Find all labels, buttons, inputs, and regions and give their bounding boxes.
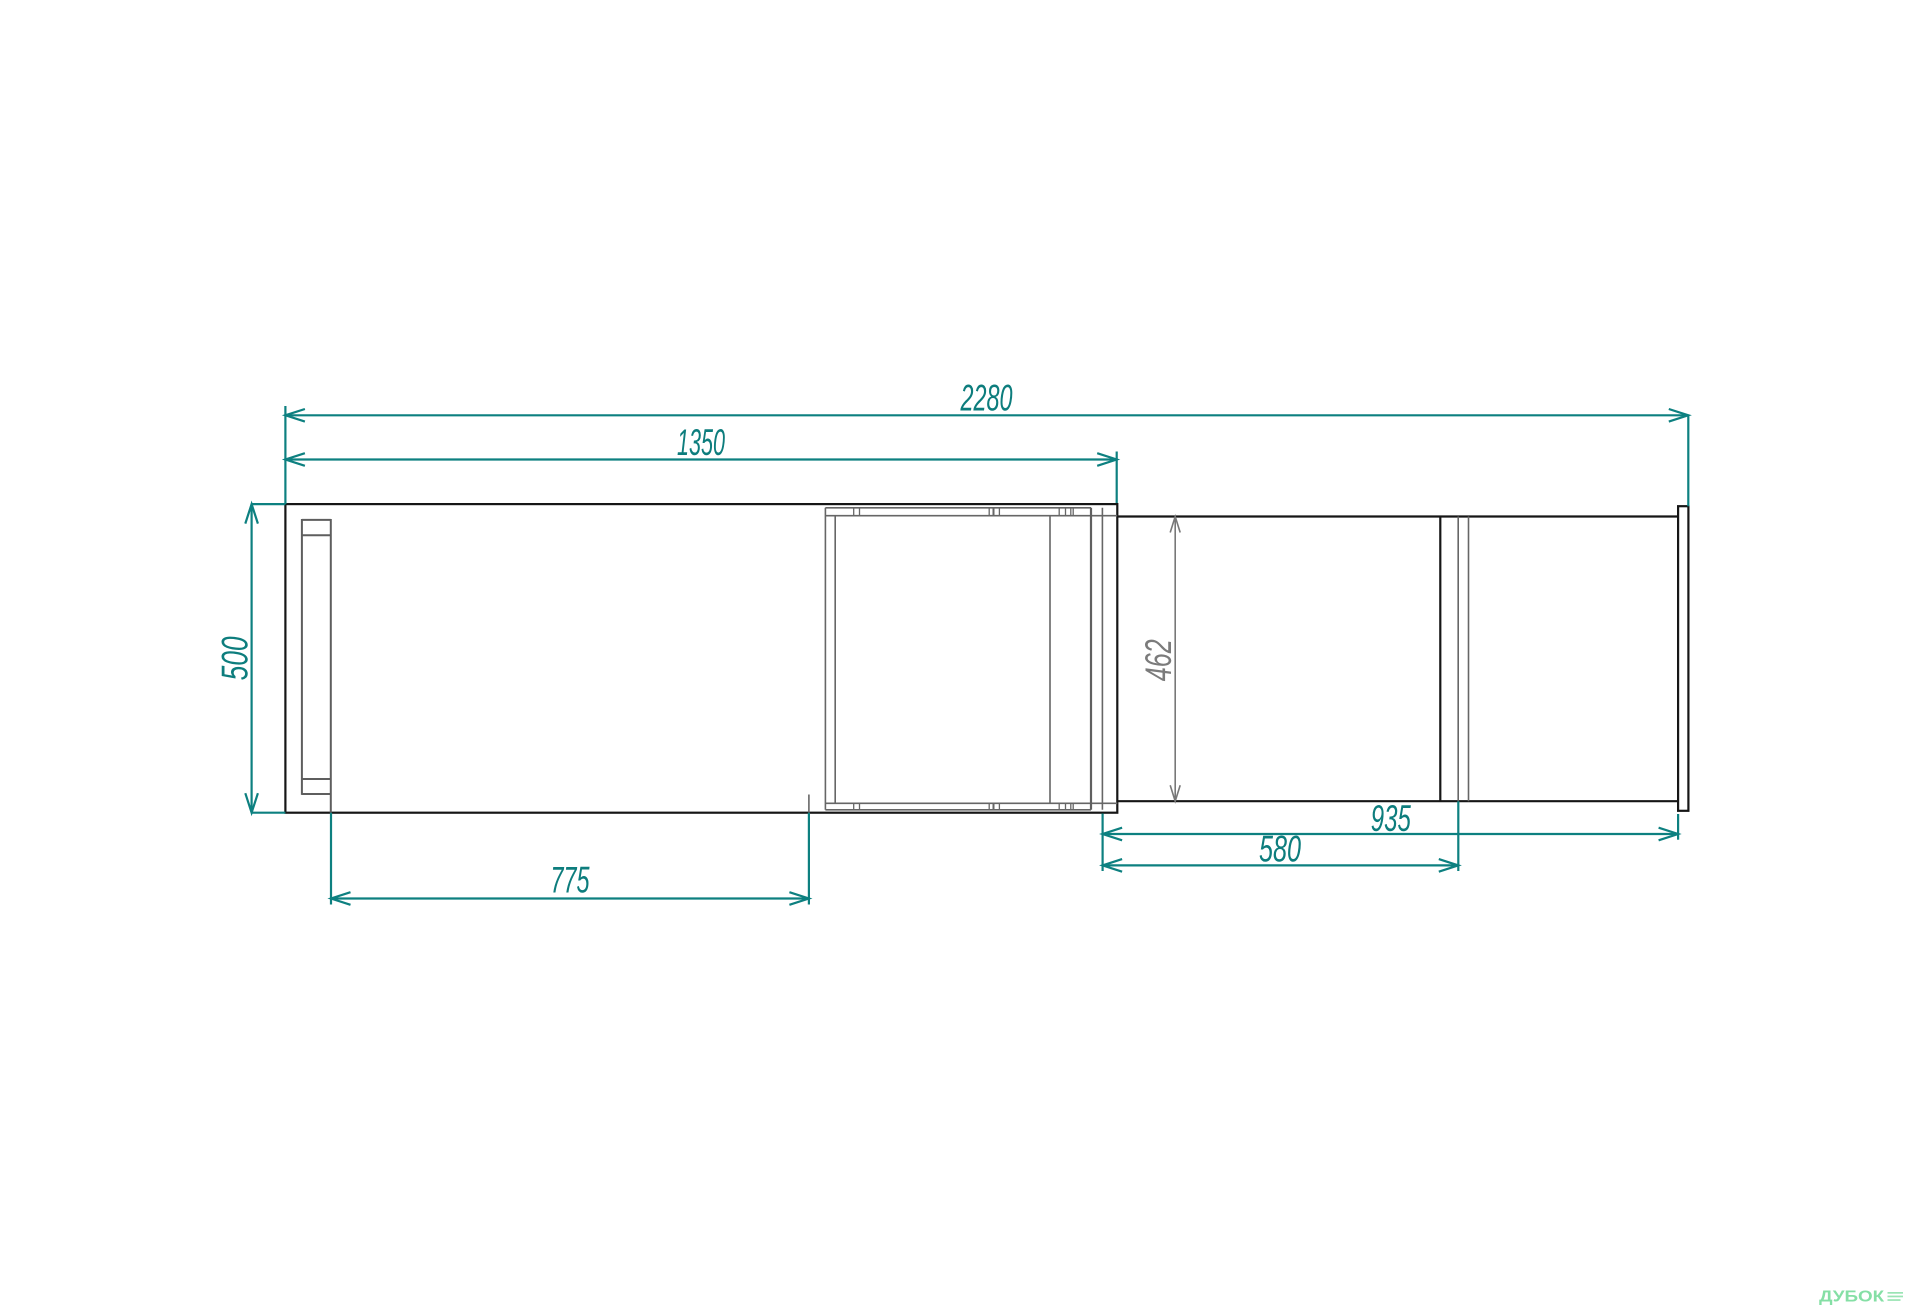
svg-text:462: 462: [1138, 639, 1179, 681]
svg-text:1350: 1350: [677, 422, 725, 463]
svg-text:935: 935: [1371, 798, 1411, 839]
svg-text:500: 500: [214, 636, 255, 680]
svg-text:ДУБОК: ДУБОК: [1819, 1288, 1885, 1305]
svg-text:580: 580: [1259, 829, 1301, 870]
svg-text:2280: 2280: [960, 378, 1013, 419]
svg-text:775: 775: [551, 860, 590, 901]
